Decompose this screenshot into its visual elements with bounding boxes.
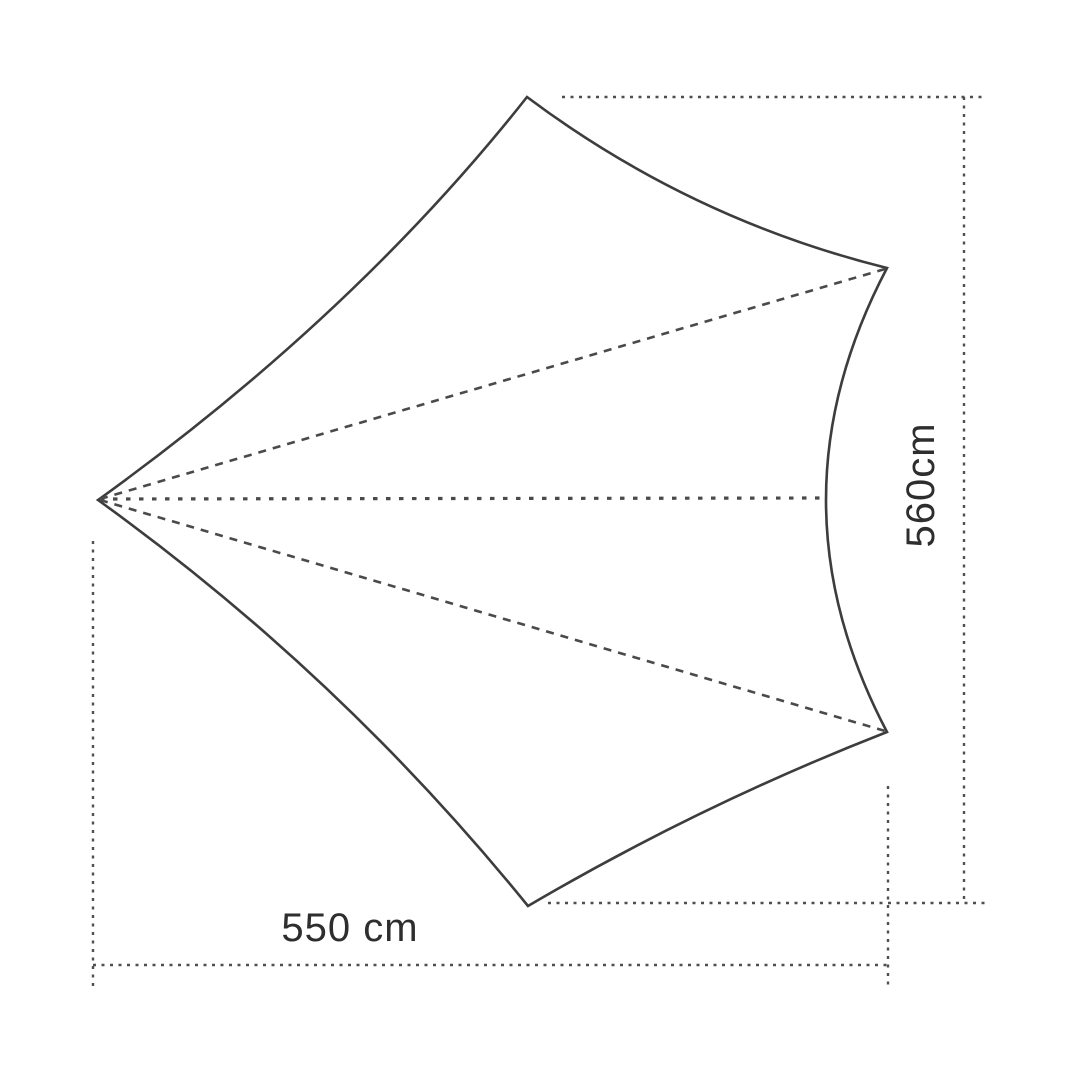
tarp-outline	[98, 97, 887, 906]
ridge-line-upper	[100, 269, 885, 499]
tarp-diagram-canvas: 550 cm 560cm	[0, 0, 1080, 1080]
ridge-line-lower	[100, 500, 885, 731]
height-dimension-label: 560cm	[901, 422, 941, 547]
width-dimension-label: 550 cm	[240, 908, 460, 948]
ridge-line-middle	[100, 498, 828, 499]
